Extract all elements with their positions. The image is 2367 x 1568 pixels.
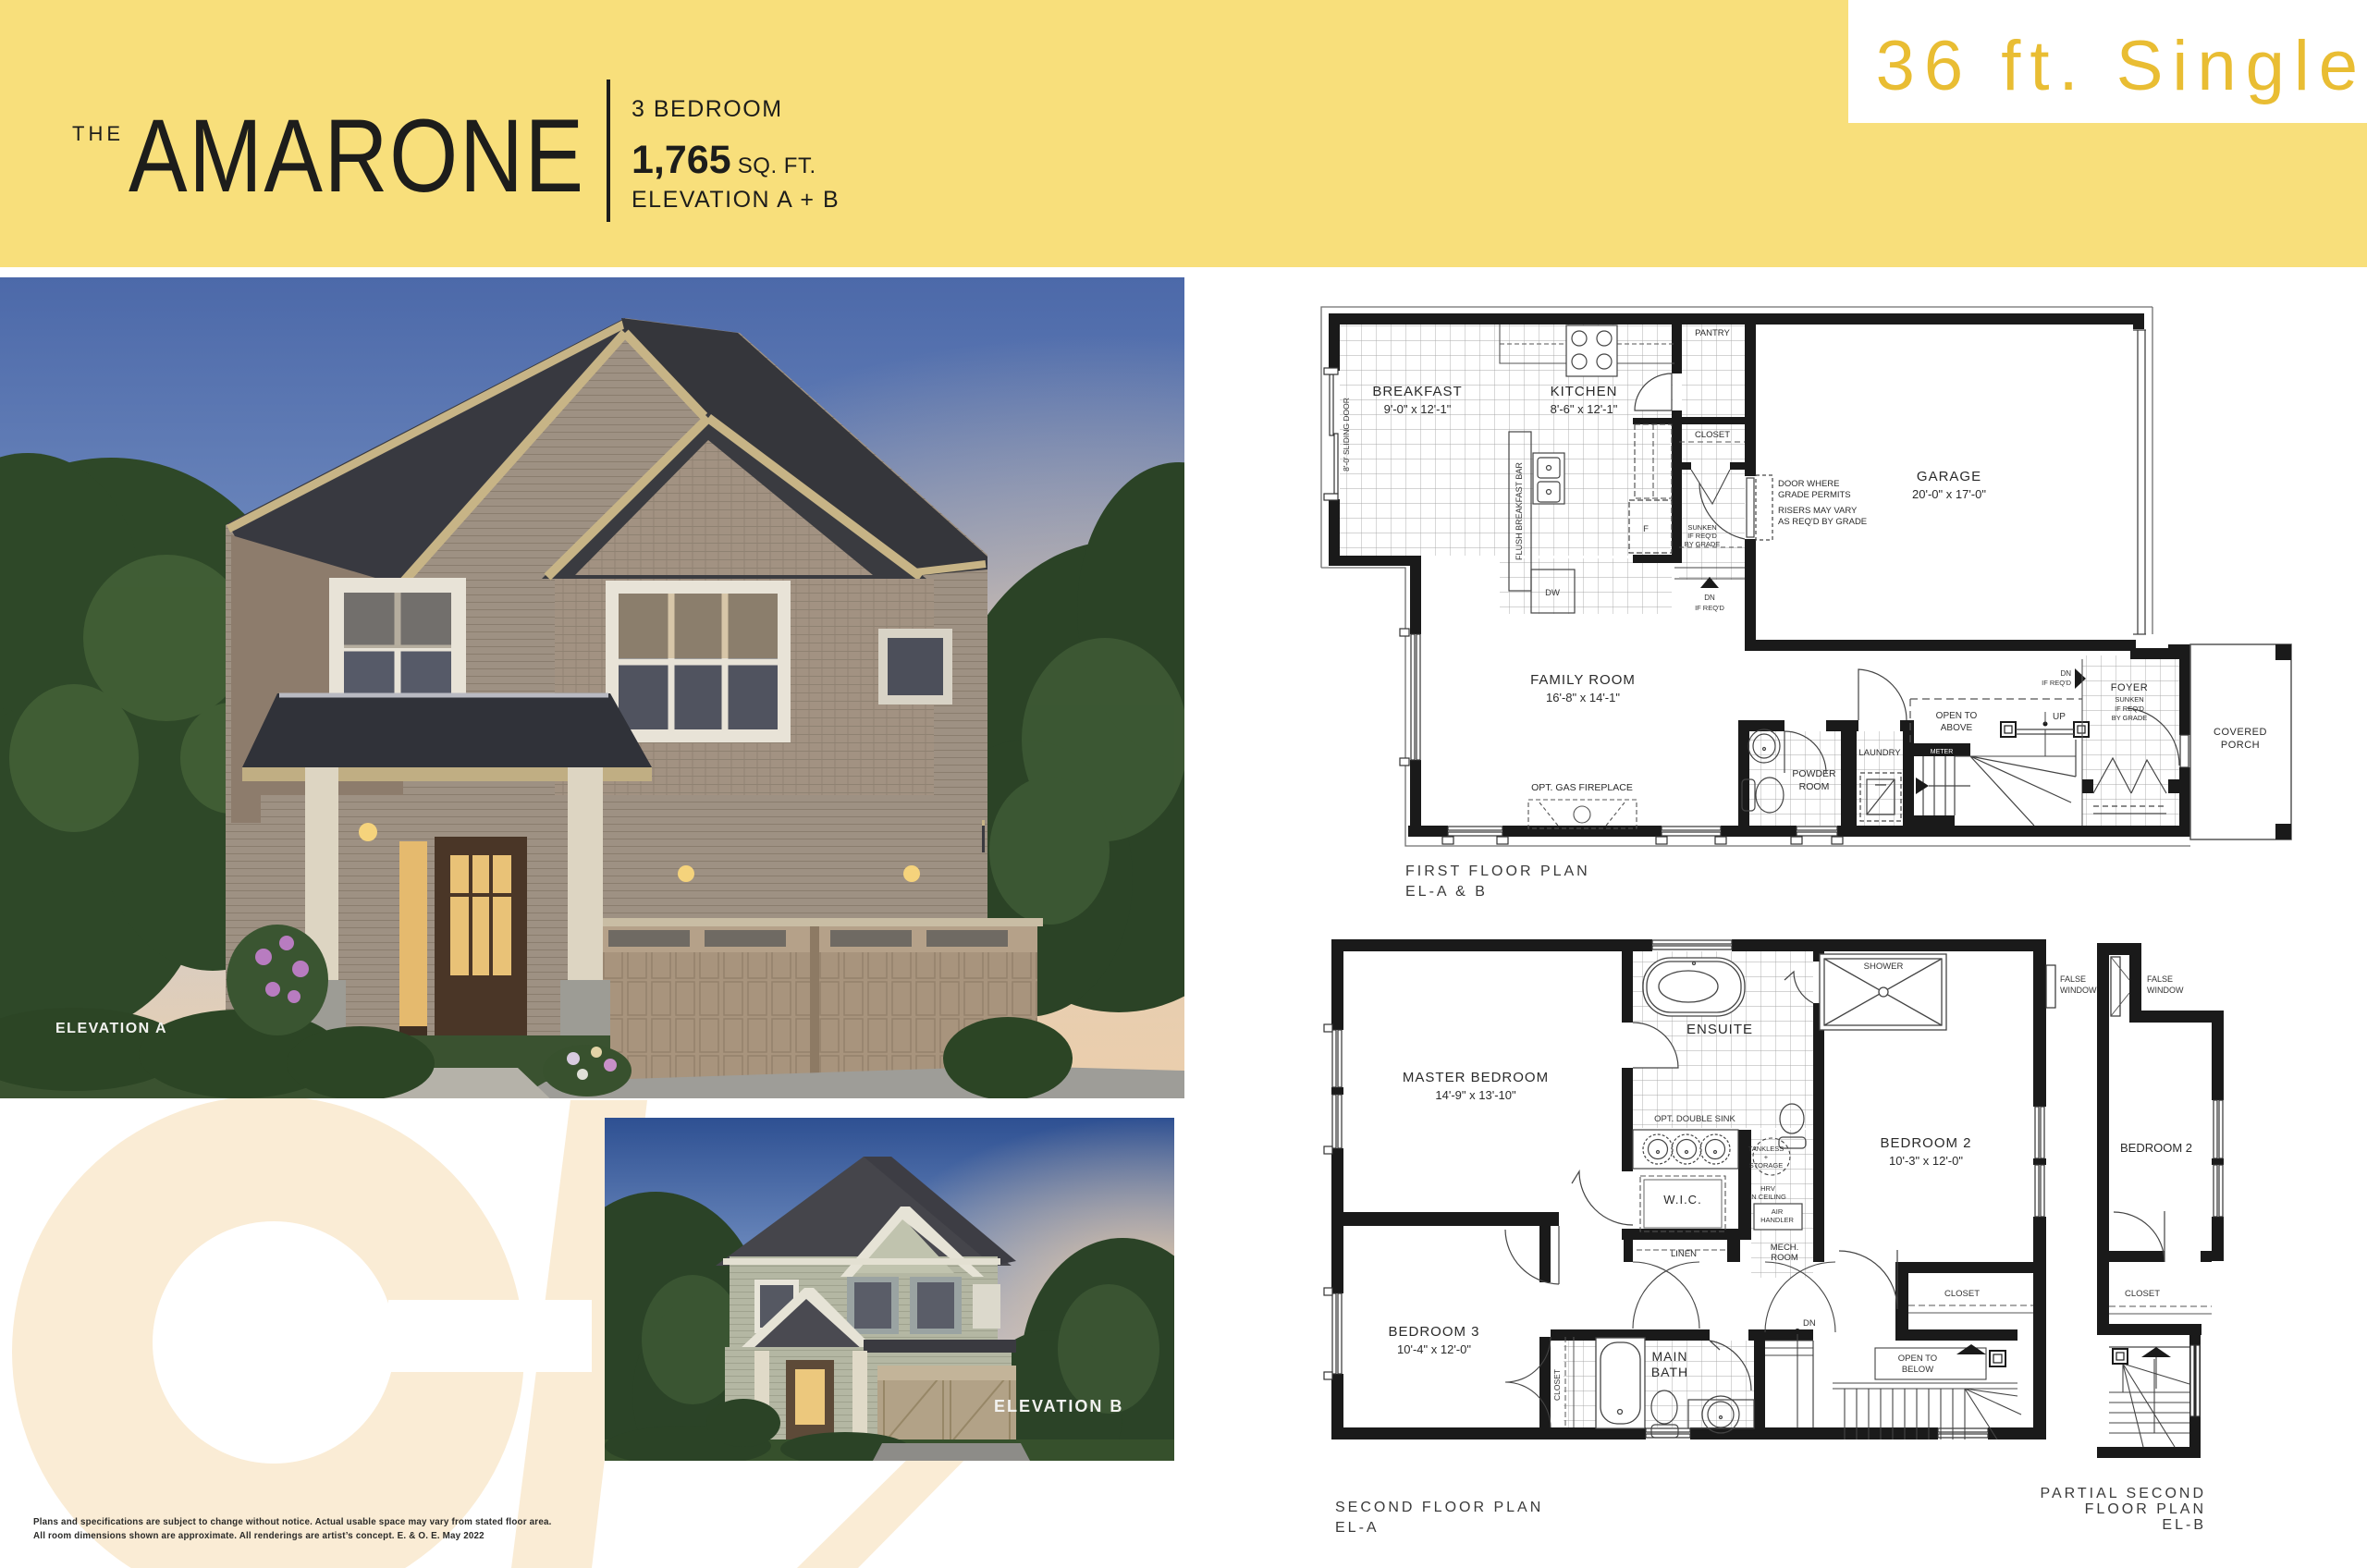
svg-text:14'-9" x 13'-10": 14'-9" x 13'-10"	[1435, 1088, 1516, 1102]
svg-text:BEDROOM 3: BEDROOM 3	[1388, 1324, 1479, 1340]
svg-text:GRADE PERMITS: GRADE PERMITS	[1778, 490, 1851, 500]
svg-text:FLOOR PLAN: FLOOR PLAN	[2085, 1501, 2206, 1517]
svg-text:CLOSET: CLOSET	[2125, 1289, 2160, 1299]
svg-text:8'-0' SLIDING DOOR: 8'-0' SLIDING DOOR	[1342, 398, 1351, 472]
svg-text:PARTIAL SECOND: PARTIAL SECOND	[2040, 1486, 2206, 1501]
svg-text:WINDOW: WINDOW	[2060, 986, 2097, 995]
svg-text:COVERED: COVERED	[2214, 727, 2267, 738]
svg-text:IF REQ'D: IF REQ'D	[2042, 679, 2071, 687]
svg-text:20'-0" x 17'-0": 20'-0" x 17'-0"	[1912, 487, 1986, 501]
svg-text:FALSE: FALSE	[2060, 974, 2086, 984]
svg-text:9'-0" x 12'-1": 9'-0" x 12'-1"	[1384, 402, 1452, 416]
svg-text:GARAGE: GARAGE	[1917, 469, 1981, 484]
svg-text:SECOND FLOOR PLAN: SECOND FLOOR PLAN	[1335, 1500, 1543, 1515]
svg-text:W.I.C.: W.I.C.	[1663, 1193, 1701, 1207]
svg-text:SUNKEN: SUNKEN	[1687, 523, 1716, 532]
svg-text:MASTER BEDROOM: MASTER BEDROOM	[1403, 1070, 1549, 1085]
svg-text:CLOSET: CLOSET	[1695, 430, 1730, 440]
svg-text:BEDROOM 2: BEDROOM 2	[1880, 1135, 1971, 1151]
svg-text:HRV: HRV	[1760, 1184, 1775, 1193]
svg-text:METER: METER	[1931, 749, 1954, 755]
svg-text:MAIN: MAIN	[1652, 1349, 1688, 1364]
svg-text:DN: DN	[1803, 1318, 1816, 1329]
svg-text:10'-3" x 12'-0": 10'-3" x 12'-0"	[1889, 1154, 1963, 1168]
svg-text:FLUSH BREAKFAST BAR: FLUSH BREAKFAST BAR	[1515, 462, 1524, 560]
svg-text:IF REQ'D: IF REQ'D	[1687, 532, 1717, 540]
svg-text:UP: UP	[2053, 712, 2066, 722]
svg-text:EL-B: EL-B	[2162, 1517, 2206, 1533]
svg-text:10'-4" x 12'-0": 10'-4" x 12'-0"	[1397, 1342, 1471, 1356]
svg-text:WINDOW: WINDOW	[2147, 986, 2184, 995]
svg-text:16'-8" x 14'-1": 16'-8" x 14'-1"	[1546, 691, 1620, 704]
svg-text:HANDLER: HANDLER	[1760, 1216, 1794, 1224]
svg-text:DN: DN	[1704, 594, 1715, 602]
svg-text:FAMILY ROOM: FAMILY ROOM	[1530, 672, 1636, 688]
svg-text:OPT. DOUBLE SINK: OPT. DOUBLE SINK	[1654, 1114, 1735, 1124]
svg-text:+: +	[1764, 1153, 1769, 1161]
svg-text:SHOWER: SHOWER	[1864, 962, 1904, 972]
svg-text:LAUNDRY: LAUNDRY	[1858, 748, 1901, 758]
svg-text:CLOSET: CLOSET	[1552, 1369, 1562, 1401]
svg-text:ROOM: ROOM	[1771, 1253, 1798, 1263]
svg-text:BATH: BATH	[1651, 1365, 1688, 1379]
svg-text:IF REQ'D: IF REQ'D	[2115, 704, 2144, 713]
svg-text:BEDROOM 2: BEDROOM 2	[2120, 1141, 2192, 1155]
svg-text:ROOM: ROOM	[1799, 781, 1830, 792]
svg-text:RISERS MAY VARY: RISERS MAY VARY	[1778, 506, 1858, 516]
svg-text:EL-A & B: EL-A & B	[1405, 884, 1488, 900]
svg-text:CLOSET: CLOSET	[1944, 1289, 1980, 1299]
svg-text:OPT. GAS FIREPLACE: OPT. GAS FIREPLACE	[1531, 782, 1633, 793]
svg-text:ABOVE: ABOVE	[1941, 723, 1973, 733]
svg-text:LINEN: LINEN	[1671, 1249, 1697, 1259]
svg-text:AS REQ'D BY GRADE: AS REQ'D BY GRADE	[1778, 517, 1867, 527]
svg-text:TANKLESS: TANKLESS	[1748, 1145, 1784, 1153]
svg-text:AIR: AIR	[1772, 1207, 1784, 1216]
svg-text:KITCHEN: KITCHEN	[1551, 384, 1618, 399]
svg-text:OPEN TO: OPEN TO	[1898, 1354, 1937, 1364]
svg-text:8'-6" x 12'-1": 8'-6" x 12'-1"	[1551, 402, 1618, 416]
svg-text:BY GRADE: BY GRADE	[2112, 714, 2148, 722]
svg-text:FIRST FLOOR PLAN: FIRST FLOOR PLAN	[1405, 864, 1590, 879]
svg-text:STORAGE: STORAGE	[1749, 1161, 1784, 1170]
svg-text:MECH.: MECH.	[1771, 1243, 1799, 1253]
svg-text:IF REQ'D: IF REQ'D	[1695, 604, 1724, 612]
svg-text:DN: DN	[2060, 669, 2071, 678]
svg-text:OPEN TO: OPEN TO	[1936, 711, 1978, 721]
svg-text:ELEVATION B: ELEVATION B	[994, 1397, 1123, 1415]
svg-text:PORCH: PORCH	[2221, 740, 2260, 751]
svg-text:BELOW: BELOW	[1902, 1365, 1933, 1375]
svg-text:DW: DW	[1545, 588, 1560, 598]
svg-text:POWDER: POWDER	[1792, 768, 1836, 779]
svg-text:IN CEILING: IN CEILING	[1749, 1193, 1786, 1201]
svg-text:PANTRY: PANTRY	[1695, 328, 1730, 338]
svg-text:FOYER: FOYER	[2111, 682, 2148, 693]
svg-text:EL-A: EL-A	[1335, 1520, 1380, 1536]
svg-text:FALSE: FALSE	[2147, 974, 2173, 984]
svg-text:ELEVATION A: ELEVATION A	[55, 1021, 167, 1036]
svg-text:BY GRADE: BY GRADE	[1685, 540, 1721, 548]
svg-text:F: F	[1643, 524, 1649, 534]
svg-text:BREAKFAST: BREAKFAST	[1372, 384, 1462, 399]
svg-text:ENSUITE: ENSUITE	[1686, 1022, 1753, 1037]
svg-text:SUNKEN: SUNKEN	[2115, 695, 2143, 704]
svg-text:DOOR WHERE: DOOR WHERE	[1778, 479, 1840, 489]
